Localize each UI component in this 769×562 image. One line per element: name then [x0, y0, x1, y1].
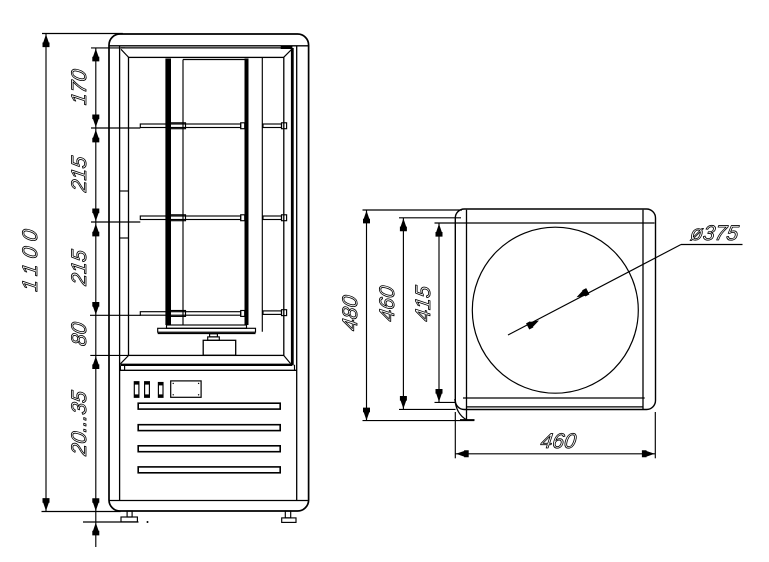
svg-text:20...35: 20...35 [68, 389, 91, 458]
svg-text:215: 215 [68, 155, 91, 195]
svg-text:80: 80 [68, 321, 91, 348]
svg-text:460: 460 [539, 430, 578, 453]
svg-text:ø375: ø375 [689, 222, 740, 245]
svg-text:415: 415 [412, 284, 435, 323]
svg-text:480: 480 [339, 294, 362, 333]
svg-text:1100: 1100 [19, 222, 42, 292]
svg-text:460: 460 [376, 284, 399, 323]
svg-text:215: 215 [68, 248, 91, 288]
svg-text:170: 170 [68, 68, 91, 107]
